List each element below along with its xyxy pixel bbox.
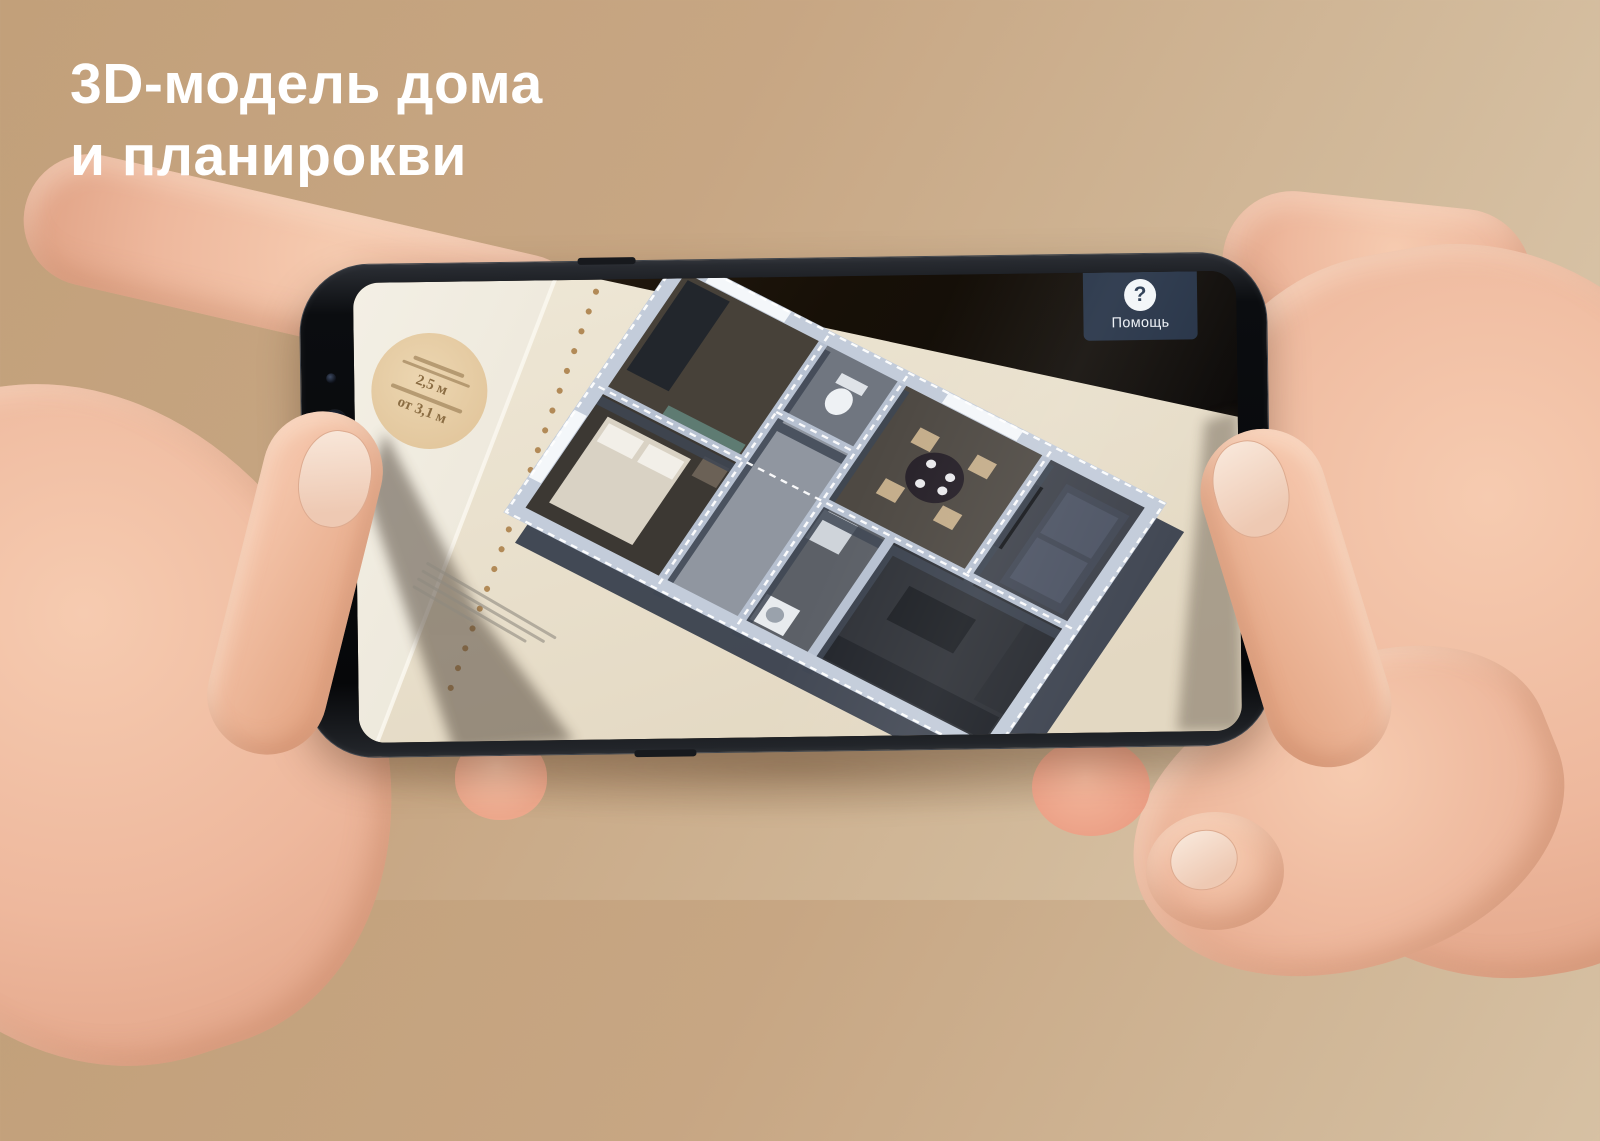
smartphone: 2,5 м от 3,1 м ? Помощь bbox=[299, 251, 1274, 758]
power-button bbox=[634, 749, 696, 757]
page-title-line1: 3D-модель дома bbox=[70, 48, 543, 120]
phone-screen[interactable]: 2,5 м от 3,1 м ? Помощь bbox=[353, 271, 1242, 743]
front-camera-icon bbox=[326, 373, 336, 383]
screen-glare bbox=[353, 271, 1242, 743]
right-hand-fingertip-pink bbox=[1032, 738, 1150, 836]
page-title-line2: и планирокви bbox=[70, 120, 543, 192]
page-title: 3D-модель дома и планирокви bbox=[70, 48, 543, 192]
promo-banner: { "title": { "line1": "3D-модель дома", … bbox=[0, 0, 1600, 900]
volume-button bbox=[578, 257, 636, 265]
